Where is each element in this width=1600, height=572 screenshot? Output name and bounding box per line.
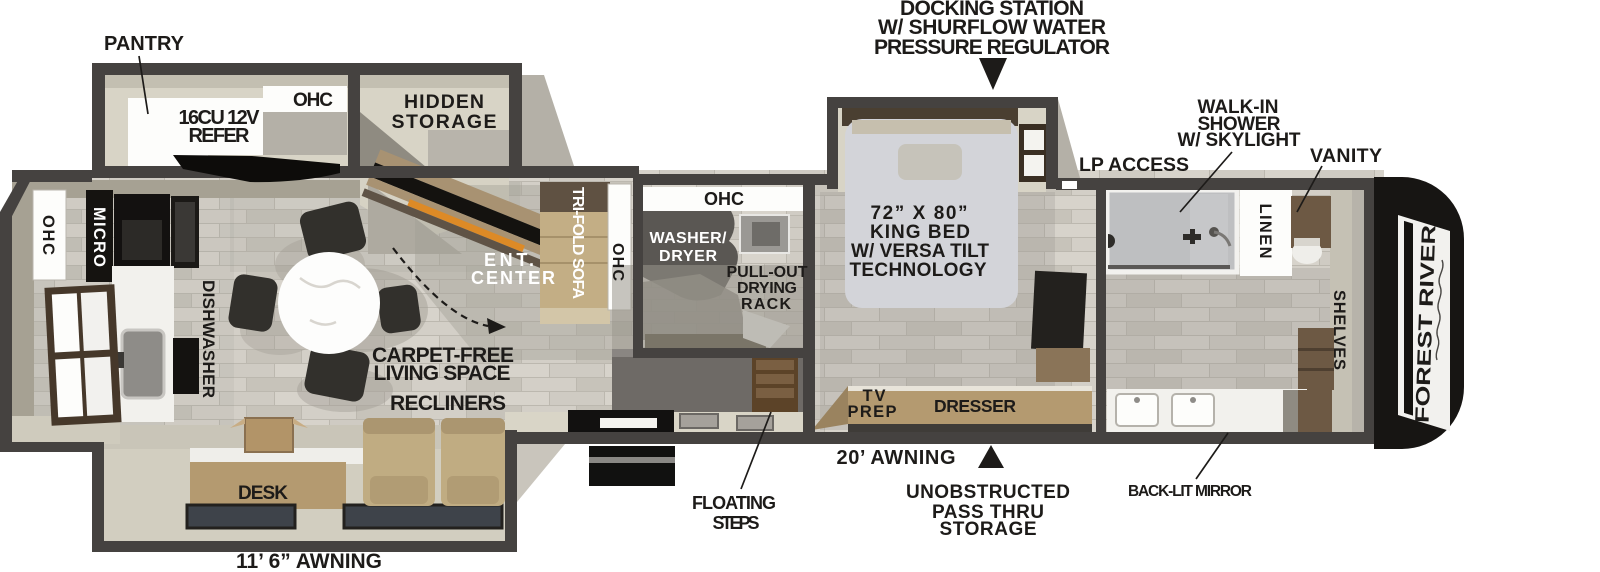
svg-text:11’ 6” AWNING: 11’ 6” AWNING [236, 550, 382, 572]
svg-text:PRESSURE REGULATOR: PRESSURE REGULATOR [874, 36, 1110, 59]
svg-text:OHC: OHC [39, 215, 57, 255]
svg-text:WASHER/: WASHER/ [650, 230, 728, 247]
svg-text:KING BED: KING BED [870, 222, 970, 243]
svg-text:W/ SKYLIGHT: W/ SKYLIGHT [1178, 130, 1301, 151]
svg-text:VANITY: VANITY [1310, 145, 1382, 167]
svg-text:72” X 80”: 72” X 80” [871, 203, 968, 224]
svg-text:HIDDEN: HIDDEN [404, 91, 484, 113]
svg-text:TRI-FOLD SOFA: TRI-FOLD SOFA [569, 187, 586, 299]
svg-text:DISHWASHER: DISHWASHER [199, 280, 218, 398]
svg-text:STORAGE: STORAGE [940, 519, 1037, 540]
svg-text:UNOBSTRUCTED: UNOBSTRUCTED [906, 482, 1070, 503]
svg-text:CENTER: CENTER [471, 268, 555, 288]
svg-text:LINEN: LINEN [1256, 204, 1274, 259]
svg-text:STEPS: STEPS [713, 513, 760, 533]
svg-text:RACK: RACK [741, 296, 791, 313]
svg-text:RECLINERS: RECLINERS [390, 392, 506, 415]
svg-text:OHC: OHC [704, 189, 744, 209]
svg-text:W/ VERSA TILT: W/ VERSA TILT [851, 241, 989, 262]
svg-text:DESK: DESK [238, 483, 288, 504]
svg-text:PANTRY: PANTRY [104, 33, 185, 55]
svg-text:REFER: REFER [189, 125, 251, 147]
svg-text:STORAGE: STORAGE [392, 111, 497, 133]
svg-text:MICRO: MICRO [90, 207, 108, 267]
svg-text:LP ACCESS: LP ACCESS [1079, 154, 1189, 176]
svg-text:TECHNOLOGY: TECHNOLOGY [850, 260, 987, 281]
svg-text:OHC: OHC [609, 243, 626, 281]
svg-text:OHC: OHC [293, 90, 333, 111]
svg-text:DRESSER: DRESSER [934, 396, 1016, 416]
svg-text:SHELVES: SHELVES [1330, 290, 1348, 370]
svg-text:DRYING: DRYING [737, 280, 797, 297]
svg-text:BACK-LIT MIRROR: BACK-LIT MIRROR [1128, 483, 1252, 500]
svg-text:LIVING SPACE: LIVING SPACE [374, 362, 511, 385]
svg-text:DRYER: DRYER [659, 248, 717, 265]
svg-text:PULL-OUT: PULL-OUT [727, 264, 808, 281]
svg-text:20’ AWNING: 20’ AWNING [837, 447, 956, 469]
svg-text:FLOATING: FLOATING [692, 493, 776, 513]
